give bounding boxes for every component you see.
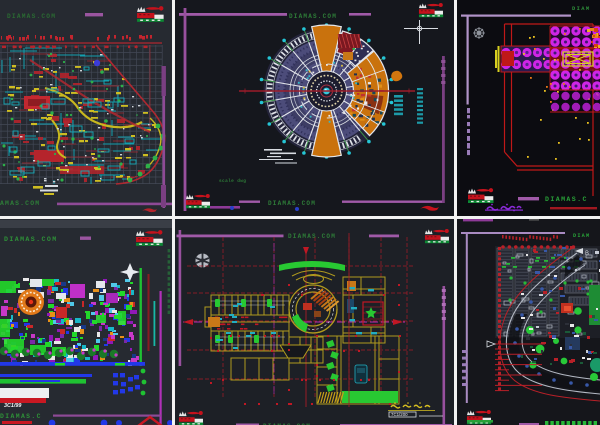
svg-text:DIAMAS.C: DIAMAS.C <box>0 413 42 420</box>
svg-text:DIAMAS.COM: DIAMAS.COM <box>289 13 337 20</box>
svg-text:7C1/200: 7C1/200 <box>391 412 408 417</box>
svg-text:B: B <box>585 251 589 257</box>
svg-text:AMAS.COM: AMAS.COM <box>0 200 40 207</box>
svg-text:scale dwg: scale dwg <box>219 179 246 184</box>
svg-text:DIAMAS.COM: DIAMAS.COM <box>268 200 316 207</box>
svg-text:DIAMAS.C: DIAMAS.C <box>545 196 588 203</box>
svg-text:3C1/99: 3C1/99 <box>4 403 21 409</box>
svg-text:DIAMAS.COM: DIAMAS.COM <box>7 13 56 20</box>
svg-text:DIAM: DIAM <box>572 6 591 12</box>
svg-text:DIAMAS.COM: DIAMAS.COM <box>4 236 58 243</box>
svg-text:DIAMAS.COM: DIAMAS.COM <box>288 233 336 240</box>
svg-text:DIAM: DIAM <box>573 233 590 239</box>
